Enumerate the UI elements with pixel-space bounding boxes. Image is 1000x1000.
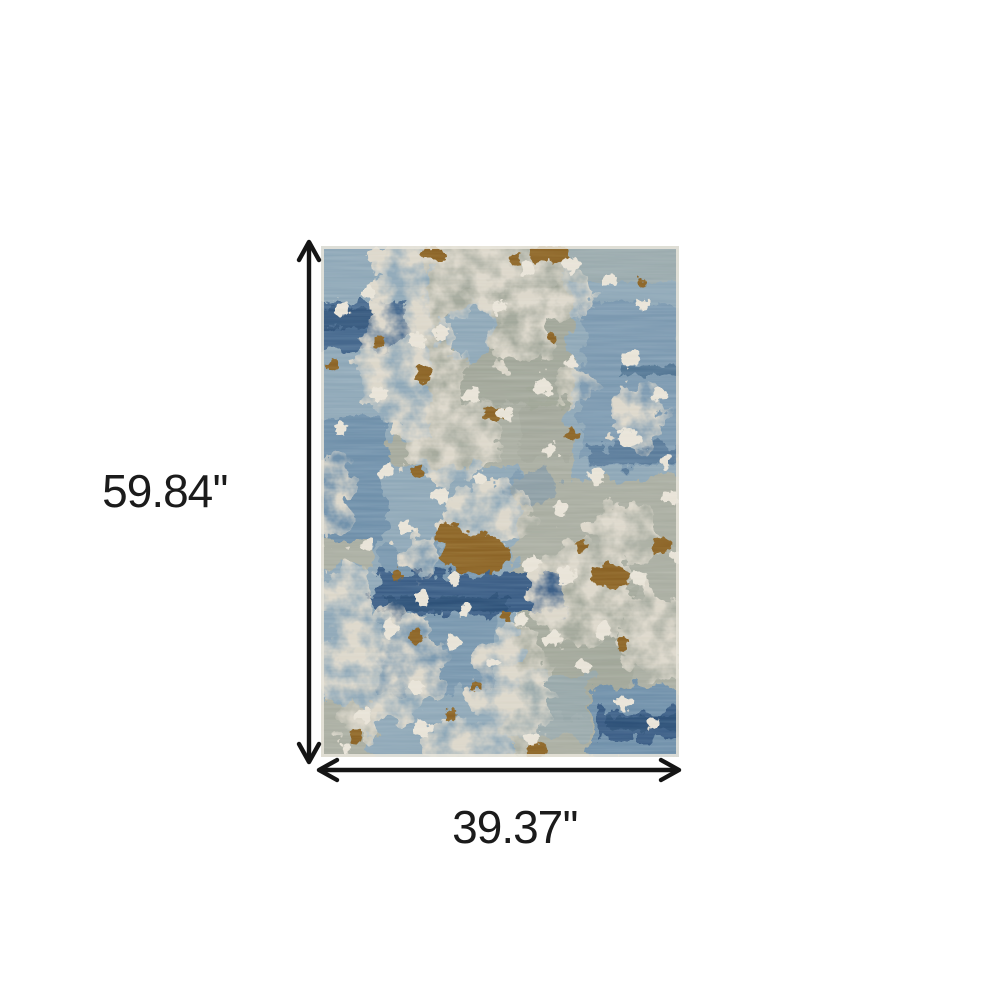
- rug-texture-dark: [321, 246, 679, 757]
- product-dimension-diagram: 59.84'' 39.37'': [0, 0, 1000, 1000]
- width-dimension-arrow: [313, 755, 685, 785]
- rug-image: [321, 246, 679, 757]
- width-dimension-label: 39.37'': [365, 800, 665, 854]
- rug-pattern: [321, 246, 679, 757]
- horizontal-arrow-icon: [313, 755, 685, 785]
- height-dimension-label: 59.84'': [25, 464, 305, 518]
